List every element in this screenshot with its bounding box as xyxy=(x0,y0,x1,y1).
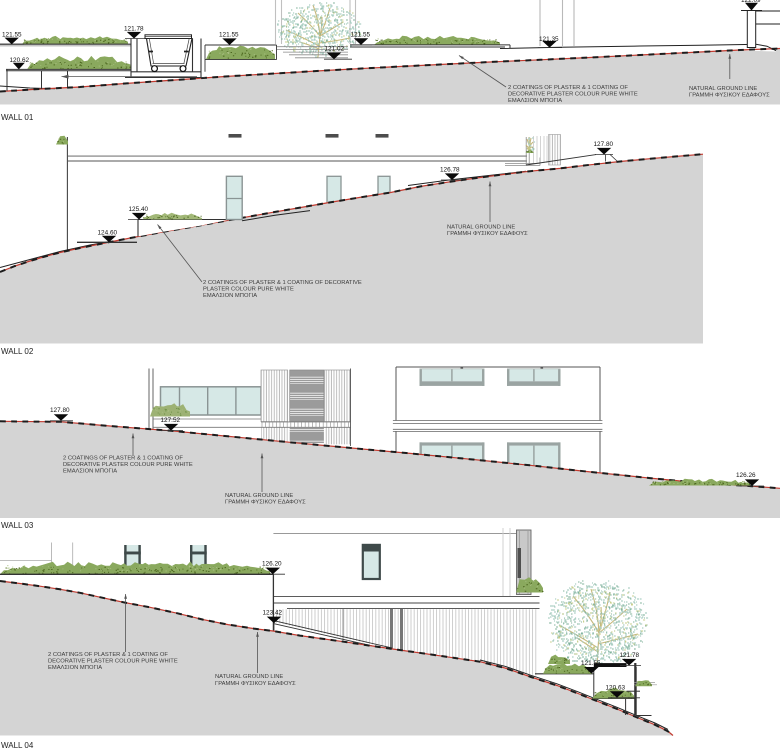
svg-text:120.63: 120.63 xyxy=(606,684,626,691)
svg-text:127.80: 127.80 xyxy=(50,407,70,414)
svg-text:127.52: 127.52 xyxy=(161,417,181,424)
svg-text:121.55: 121.55 xyxy=(351,31,371,38)
svg-text:ΕΜΑΛΣΙΟΝ ΜΠΟΓΙΑ: ΕΜΑΛΣΙΟΝ ΜΠΟΓΙΑ xyxy=(508,98,562,104)
svg-text:NATURAL GROUND LINE: NATURAL GROUND LINE xyxy=(689,86,757,92)
svg-text:121.55: 121.55 xyxy=(581,660,601,667)
svg-text:121.55: 121.55 xyxy=(2,32,22,39)
svg-text:124.60: 124.60 xyxy=(98,230,118,237)
svg-text:ΓΡΑΜΜΗ ΦΥΣΙΚΟΥ ΕΔΑΦΟΥΣ: ΓΡΑΜΜΗ ΦΥΣΙΚΟΥ ΕΔΑΦΟΥΣ xyxy=(447,231,528,237)
svg-text:2 COATINGS OF PLASTER & 1 COAT: 2 COATINGS OF PLASTER & 1 COATING OF xyxy=(48,652,168,658)
svg-text:PLASTER COLOUR PURE WHITE: PLASTER COLOUR PURE WHITE xyxy=(203,287,294,293)
svg-text:DECORATIVE PLASTER COLOUR PURE: DECORATIVE PLASTER COLOUR PURE WHITE xyxy=(508,92,638,98)
svg-text:121.55: 121.55 xyxy=(219,32,239,39)
svg-text:ΕΜΑΛΣΙΟΝ ΜΠΟΓΙΑ: ΕΜΑΛΣΙΟΝ ΜΠΟΓΙΑ xyxy=(48,665,102,671)
svg-text:ΓΡΑΜΜΗ ΦΥΣΙΚΟΥ ΕΔΑΦΟΥΣ: ΓΡΑΜΜΗ ΦΥΣΙΚΟΥ ΕΔΑΦΟΥΣ xyxy=(215,681,296,687)
svg-text:121.35: 121.35 xyxy=(539,36,559,43)
svg-text:122.09: 122.09 xyxy=(741,0,761,4)
svg-text:126.20: 126.20 xyxy=(262,561,282,568)
svg-text:120.62: 120.62 xyxy=(10,57,30,64)
svg-text:2 COATINGS OF PLASTER & 1 COAT: 2 COATINGS OF PLASTER & 1 COATING OF xyxy=(508,85,628,91)
svg-text:NATURAL GROUND LINE: NATURAL GROUND LINE xyxy=(215,674,283,680)
svg-text:126.26: 126.26 xyxy=(736,472,756,479)
svg-text:WALL 02: WALL 02 xyxy=(1,347,34,356)
svg-text:ΕΜΑΛΣΙΟΝ ΜΠΟΓΙΑ: ΕΜΑΛΣΙΟΝ ΜΠΟΓΙΑ xyxy=(63,469,117,475)
svg-text:127.80: 127.80 xyxy=(594,141,614,148)
svg-text:2 COATINGS OF PLASTER & 1 COAT: 2 COATINGS OF PLASTER & 1 COATING OF DEC… xyxy=(203,280,362,286)
svg-text:121.78: 121.78 xyxy=(124,26,144,33)
svg-text:123.42: 123.42 xyxy=(263,610,283,617)
svg-text:ΕΜΑΛΣΙΟΝ ΜΠΟΓΙΑ: ΕΜΑΛΣΙΟΝ ΜΠΟΓΙΑ xyxy=(203,293,257,299)
svg-text:WALL 01: WALL 01 xyxy=(1,113,34,122)
svg-text:ΓΡΑΜΜΗ ΦΥΣΙΚΟΥ ΕΔΑΦΟΥΣ: ΓΡΑΜΜΗ ΦΥΣΙΚΟΥ ΕΔΑΦΟΥΣ xyxy=(225,500,306,506)
svg-text:121.02: 121.02 xyxy=(325,46,345,53)
svg-text:NATURAL GROUND LINE: NATURAL GROUND LINE xyxy=(225,493,293,499)
svg-text:WALL 03: WALL 03 xyxy=(1,521,34,530)
svg-text:ΓΡΑΜΜΗ ΦΥΣΙΚΟΥ ΕΔΑΦΟΥΣ: ΓΡΑΜΜΗ ΦΥΣΙΚΟΥ ΕΔΑΦΟΥΣ xyxy=(689,93,770,99)
svg-text:NATURAL GROUND LINE: NATURAL GROUND LINE xyxy=(447,225,515,231)
svg-text:121.78: 121.78 xyxy=(620,652,640,659)
svg-text:DECORATIVE PLASTER COLOUR PURE: DECORATIVE PLASTER COLOUR PURE WHITE xyxy=(48,659,178,665)
svg-text:2 COATINGS OF PLASTER & 1 COAT: 2 COATINGS OF PLASTER & 1 COATING OF xyxy=(63,456,183,462)
svg-text:WALL 04: WALL 04 xyxy=(1,741,34,750)
svg-text:125.40: 125.40 xyxy=(129,206,149,213)
svg-text:126.78: 126.78 xyxy=(440,166,460,173)
svg-text:DECORATIVE PLASTER COLOUR PURE: DECORATIVE PLASTER COLOUR PURE WHITE xyxy=(63,462,193,468)
